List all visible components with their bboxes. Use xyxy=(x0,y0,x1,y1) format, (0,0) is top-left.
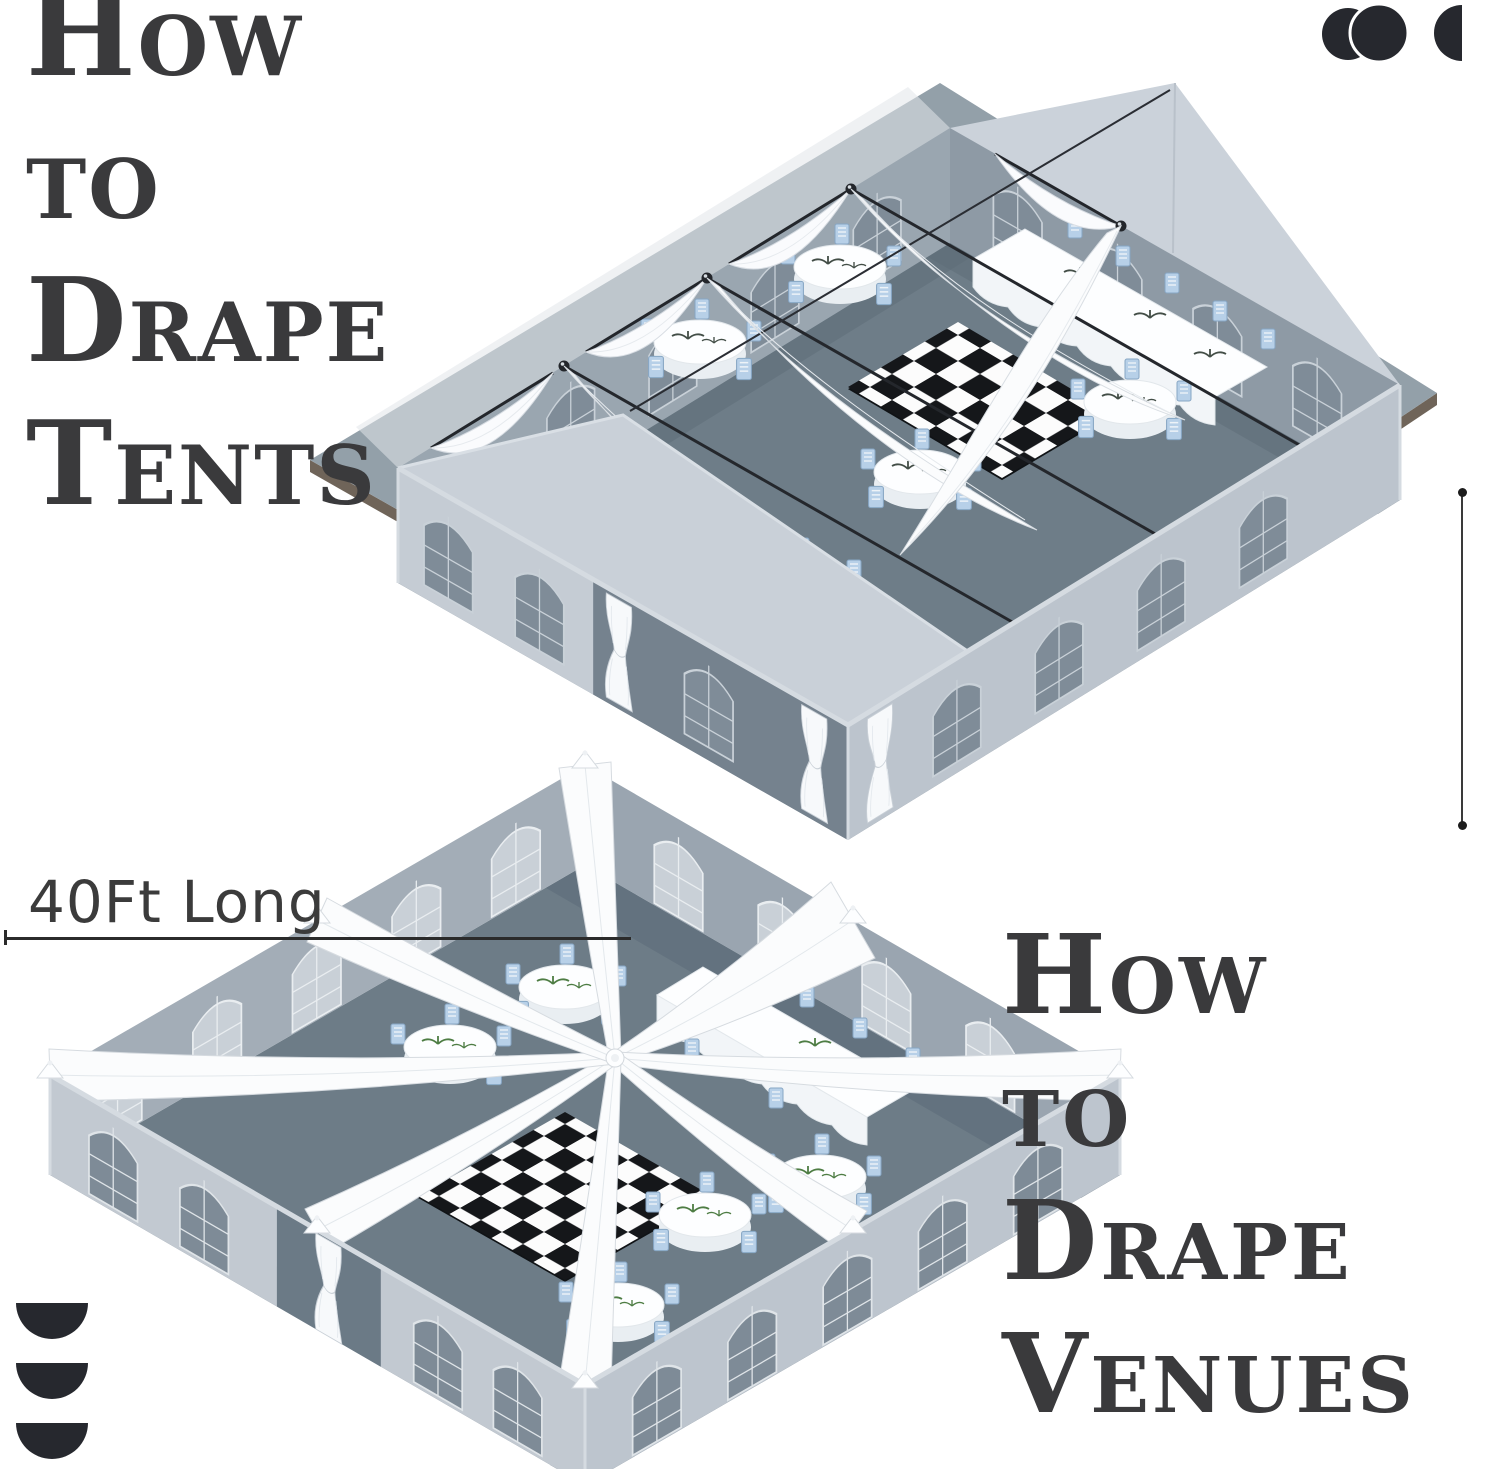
title-word: Drape xyxy=(26,250,389,393)
title-word: Drape xyxy=(1002,1174,1416,1307)
page: How to Drape Tents How to Drape Venues 4… xyxy=(0,0,1500,1469)
drape-swags xyxy=(431,154,1121,453)
radial-drapes xyxy=(49,762,1121,1387)
banquet-table xyxy=(657,957,920,1145)
tent-clear-roof-hint xyxy=(356,87,950,468)
tent-right-gable xyxy=(950,83,1400,385)
banquet-table xyxy=(973,218,1275,425)
venue-back-left-wall xyxy=(50,765,585,1175)
height-line-dot-top xyxy=(1458,488,1467,497)
dimension-label: 40Ft Long xyxy=(28,868,326,936)
height-line-dot-bottom xyxy=(1458,821,1467,830)
tent-platform xyxy=(310,83,1437,788)
tent-back-right-wall xyxy=(950,128,1400,500)
venue-floor xyxy=(50,865,1120,1469)
round-tables xyxy=(391,944,881,1343)
title-word: How xyxy=(26,0,389,107)
dance-floor xyxy=(846,322,1114,480)
title-word: Tents xyxy=(26,393,389,536)
title-word: How xyxy=(1002,908,1416,1041)
stacked-half-circles-icon xyxy=(14,1303,90,1463)
title-word: to xyxy=(1002,1041,1416,1174)
venue-front-left-wall xyxy=(50,1075,585,1469)
venue-illustration xyxy=(15,748,1165,1469)
title-word: to xyxy=(26,107,389,250)
porch-roof xyxy=(398,415,969,725)
title-how-to-drape-tents: How to Drape Tents xyxy=(26,0,389,536)
round-tables xyxy=(551,224,1191,619)
dimension-line xyxy=(4,937,631,940)
tent-end-wall xyxy=(398,468,848,840)
title-how-to-drape-venues: How to Drape Venues xyxy=(1002,908,1416,1440)
tent-floor xyxy=(398,243,1400,840)
tent-back-left-wall xyxy=(398,128,950,583)
title-word: Venues xyxy=(1002,1307,1416,1440)
height-line xyxy=(1461,492,1463,825)
overlapping-circles-icon xyxy=(1322,4,1464,64)
tent-illustration xyxy=(280,75,1450,845)
drape-tails xyxy=(564,189,1185,615)
drape-peaks xyxy=(37,751,1133,1389)
dance-floor xyxy=(416,1112,713,1282)
tent-front-right-wall xyxy=(848,385,1400,840)
tent-frame xyxy=(559,90,1302,623)
